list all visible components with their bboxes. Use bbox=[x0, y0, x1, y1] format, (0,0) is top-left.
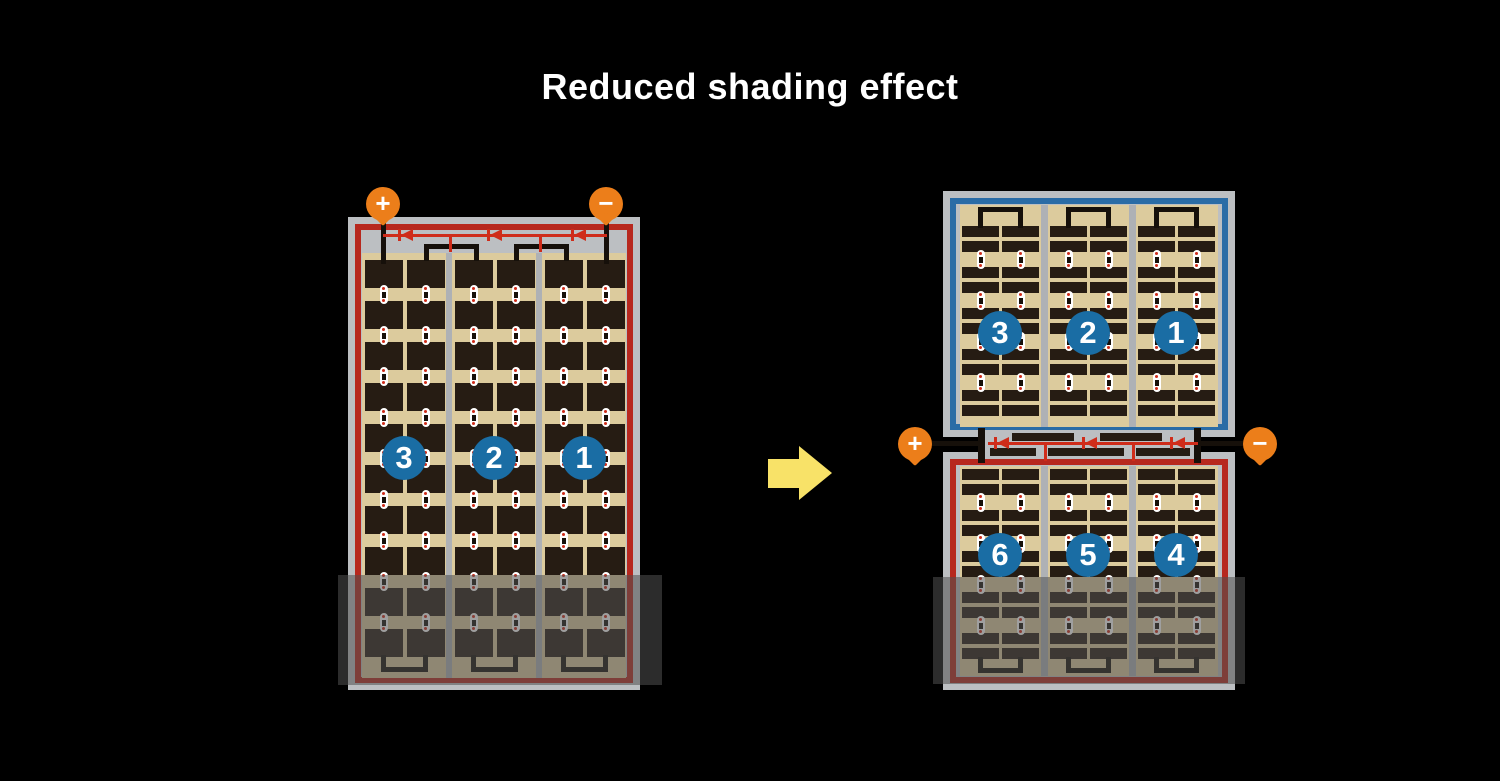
connector-bar bbox=[1107, 257, 1111, 263]
section-badge: 1 bbox=[562, 436, 606, 480]
connector-dot bbox=[472, 492, 475, 495]
connector-bar bbox=[562, 497, 566, 503]
connector-bar bbox=[472, 415, 476, 421]
connector-dot bbox=[562, 545, 565, 548]
cell-connector-icon bbox=[1017, 493, 1025, 512]
solar-bar-cell bbox=[1090, 469, 1127, 480]
connector-dot bbox=[1195, 375, 1198, 378]
connector-dot bbox=[472, 369, 475, 372]
connector-dot bbox=[1067, 495, 1070, 498]
solar-bar-cell bbox=[1090, 405, 1127, 416]
cell-connector-icon bbox=[560, 490, 568, 509]
transform-arrow-icon bbox=[768, 459, 799, 488]
connector-bar bbox=[1195, 380, 1199, 386]
generated-graphics bbox=[0, 0, 1500, 781]
cell-connector-icon bbox=[422, 490, 430, 509]
connector-bar bbox=[1019, 500, 1023, 506]
connector-dot bbox=[472, 328, 475, 331]
wire-bridge bbox=[1066, 207, 1111, 228]
connector-bar bbox=[1155, 500, 1159, 506]
cell-connector-icon bbox=[602, 408, 610, 427]
cell-connector-icon bbox=[422, 285, 430, 304]
solar-cell bbox=[455, 547, 493, 575]
solar-cell bbox=[407, 383, 445, 411]
connector-dot bbox=[979, 346, 982, 349]
connector-dot bbox=[472, 504, 475, 507]
connector-dot bbox=[1155, 495, 1158, 498]
cell-connector-icon bbox=[977, 373, 985, 392]
solar-cell bbox=[365, 506, 403, 534]
cell-connector-icon bbox=[470, 367, 478, 386]
connector-bar bbox=[1107, 298, 1111, 304]
connector-dot bbox=[1155, 536, 1158, 539]
connector-dot bbox=[382, 287, 385, 290]
cell-connector-icon bbox=[1017, 291, 1025, 310]
cell-connector-icon bbox=[1193, 373, 1201, 392]
connector-bar bbox=[472, 538, 476, 544]
solar-cell bbox=[365, 342, 403, 370]
transform-arrow-head-icon bbox=[799, 446, 832, 500]
connector-dot bbox=[382, 299, 385, 302]
connector-dot bbox=[514, 381, 517, 384]
connector-bar bbox=[604, 333, 608, 339]
connector-bar bbox=[424, 415, 428, 421]
connector-dot bbox=[562, 328, 565, 331]
solar-cell bbox=[545, 383, 583, 411]
cell-connector-icon bbox=[1017, 250, 1025, 269]
cell-connector-icon bbox=[560, 367, 568, 386]
connector-dot bbox=[472, 340, 475, 343]
section-badge: 1 bbox=[1154, 311, 1198, 355]
connector-bar bbox=[979, 257, 983, 263]
connector-dot bbox=[1155, 252, 1158, 255]
connector-dot bbox=[514, 299, 517, 302]
connector-dot bbox=[382, 340, 385, 343]
connector-dot bbox=[562, 340, 565, 343]
cell-connector-icon bbox=[1193, 291, 1201, 310]
connector-bar bbox=[514, 538, 518, 544]
connector-bar bbox=[382, 374, 386, 380]
cell-connector-icon bbox=[1065, 291, 1073, 310]
cell-connector-icon bbox=[380, 367, 388, 386]
diode-triangle-icon bbox=[997, 437, 1009, 449]
connector-dot bbox=[424, 533, 427, 536]
connector-dot bbox=[1067, 387, 1070, 390]
connector-bar bbox=[514, 333, 518, 339]
diode-triangle-icon bbox=[1085, 437, 1097, 449]
connector-bar bbox=[1155, 257, 1159, 263]
connector-dot bbox=[1195, 536, 1198, 539]
connector-bar bbox=[562, 333, 566, 339]
connector-bar bbox=[604, 292, 608, 298]
connector-bar bbox=[1107, 500, 1111, 506]
connector-dot bbox=[604, 422, 607, 425]
connector-dot bbox=[382, 504, 385, 507]
shading-overlay-right bbox=[933, 577, 1245, 684]
solar-cell bbox=[365, 301, 403, 329]
connector-dot bbox=[382, 410, 385, 413]
connector-dot bbox=[604, 287, 607, 290]
connector-dot bbox=[1107, 495, 1110, 498]
connector-bar bbox=[424, 497, 428, 503]
solar-cell bbox=[497, 547, 535, 575]
connector-dot bbox=[1019, 305, 1022, 308]
connector-dot bbox=[1019, 536, 1022, 539]
solar-cell bbox=[497, 342, 535, 370]
connector-dot bbox=[424, 328, 427, 331]
solar-cell bbox=[545, 301, 583, 329]
connector-dot bbox=[1107, 536, 1110, 539]
solar-bar-cell bbox=[1138, 469, 1175, 480]
solar-cell bbox=[587, 342, 625, 370]
connector-dot bbox=[562, 299, 565, 302]
connector-dot bbox=[424, 422, 427, 425]
connector-dot bbox=[382, 492, 385, 495]
connector-bar bbox=[1067, 380, 1071, 386]
cell-connector-icon bbox=[1065, 250, 1073, 269]
terminal-wire bbox=[381, 220, 386, 264]
cell-connector-icon bbox=[512, 490, 520, 509]
connector-bar bbox=[514, 292, 518, 298]
solar-cell bbox=[407, 547, 445, 575]
plus-terminal-icon: + bbox=[898, 427, 932, 461]
diode-triangle-icon bbox=[574, 229, 586, 241]
connector-dot bbox=[472, 410, 475, 413]
cell-connector-icon bbox=[1017, 373, 1025, 392]
connector-bar bbox=[979, 298, 983, 304]
junction-cell-segment bbox=[1100, 433, 1162, 441]
connector-bar bbox=[562, 415, 566, 421]
connector-dot bbox=[514, 504, 517, 507]
junction-cell-segment bbox=[1048, 448, 1124, 456]
connector-dot bbox=[1019, 387, 1022, 390]
connector-dot bbox=[472, 545, 475, 548]
solar-cell bbox=[587, 260, 625, 288]
connector-dot bbox=[1019, 507, 1022, 510]
connector-bar bbox=[382, 415, 386, 421]
junction-cell-segment bbox=[1136, 448, 1190, 456]
cell-connector-icon bbox=[1153, 493, 1161, 512]
connector-bar bbox=[1155, 298, 1159, 304]
cell-connector-icon bbox=[512, 326, 520, 345]
diagram-title: Reduced shading effect bbox=[0, 66, 1500, 108]
connector-dot bbox=[1155, 387, 1158, 390]
cell-connector-icon bbox=[560, 531, 568, 550]
solar-bar-cell bbox=[1138, 405, 1175, 416]
connector-bar bbox=[382, 292, 386, 298]
connector-dot bbox=[979, 305, 982, 308]
connector-bar bbox=[472, 333, 476, 339]
connector-bar bbox=[382, 333, 386, 339]
solar-bar-cell bbox=[1002, 469, 1039, 480]
connector-bar bbox=[382, 497, 386, 503]
connector-dot bbox=[514, 369, 517, 372]
cell-connector-icon bbox=[602, 285, 610, 304]
connector-dot bbox=[1155, 305, 1158, 308]
cell-connector-icon bbox=[422, 367, 430, 386]
connector-bar bbox=[1067, 298, 1071, 304]
solar-cell bbox=[587, 506, 625, 534]
solar-cell bbox=[497, 260, 535, 288]
connector-dot bbox=[1195, 495, 1198, 498]
connector-bar bbox=[1019, 380, 1023, 386]
cell-connector-icon bbox=[470, 531, 478, 550]
cell-connector-icon bbox=[602, 326, 610, 345]
solar-cell bbox=[587, 547, 625, 575]
solar-cell bbox=[497, 383, 535, 411]
section-badge: 3 bbox=[978, 311, 1022, 355]
cell-connector-icon bbox=[380, 285, 388, 304]
connector-dot bbox=[1067, 536, 1070, 539]
solar-cell bbox=[587, 301, 625, 329]
cell-connector-icon bbox=[602, 531, 610, 550]
connector-bar bbox=[382, 538, 386, 544]
solar-cell bbox=[587, 383, 625, 411]
connector-bar bbox=[1195, 298, 1199, 304]
connector-dot bbox=[472, 381, 475, 384]
connector-dot bbox=[604, 533, 607, 536]
cell-connector-icon bbox=[602, 490, 610, 509]
junction-terminal-bar bbox=[978, 428, 985, 463]
connector-dot bbox=[979, 495, 982, 498]
connector-bar bbox=[472, 374, 476, 380]
connector-dot bbox=[1107, 252, 1110, 255]
connector-dot bbox=[1107, 293, 1110, 296]
connector-dot bbox=[1107, 346, 1110, 349]
solar-cell bbox=[455, 383, 493, 411]
cell-connector-icon bbox=[1105, 493, 1113, 512]
connector-dot bbox=[1067, 264, 1070, 267]
cell-connector-icon bbox=[380, 490, 388, 509]
wire-bridge bbox=[1154, 207, 1199, 228]
section-badge: 3 bbox=[382, 436, 426, 480]
connector-dot bbox=[604, 369, 607, 372]
connector-dot bbox=[1019, 346, 1022, 349]
junction-terminal-bar bbox=[1194, 428, 1201, 463]
connector-dot bbox=[424, 299, 427, 302]
connector-dot bbox=[1195, 387, 1198, 390]
cell-connector-icon bbox=[1105, 373, 1113, 392]
cell-connector-icon bbox=[380, 531, 388, 550]
minus-terminal-icon: − bbox=[1243, 427, 1277, 461]
connector-dot bbox=[1195, 507, 1198, 510]
connector-bar bbox=[1107, 380, 1111, 386]
connector-dot bbox=[514, 492, 517, 495]
connector-dot bbox=[562, 287, 565, 290]
solar-cell bbox=[407, 260, 445, 288]
plus-symbol: + bbox=[366, 187, 400, 220]
connector-dot bbox=[1107, 264, 1110, 267]
solar-bar-cell bbox=[1050, 405, 1087, 416]
connector-bar bbox=[979, 500, 983, 506]
connector-bar bbox=[604, 374, 608, 380]
minus-terminal-icon: − bbox=[589, 187, 623, 221]
cell-connector-icon bbox=[512, 285, 520, 304]
cell-connector-icon bbox=[1193, 250, 1201, 269]
solar-cell bbox=[497, 506, 535, 534]
cell-connector-icon bbox=[977, 291, 985, 310]
connector-dot bbox=[979, 507, 982, 510]
diode-triangle-icon bbox=[401, 229, 413, 241]
cell-connector-icon bbox=[470, 490, 478, 509]
shading-overlay-left bbox=[338, 575, 662, 685]
connector-dot bbox=[424, 410, 427, 413]
connector-dot bbox=[1107, 507, 1110, 510]
connector-dot bbox=[424, 545, 427, 548]
cell-connector-icon bbox=[560, 285, 568, 304]
connector-dot bbox=[1107, 387, 1110, 390]
cell-connector-icon bbox=[560, 408, 568, 427]
cell-connector-icon bbox=[1153, 373, 1161, 392]
cell-connector-icon bbox=[422, 326, 430, 345]
plus-terminal-icon: + bbox=[366, 187, 400, 221]
connector-bar bbox=[514, 374, 518, 380]
connector-dot bbox=[979, 252, 982, 255]
connector-dot bbox=[424, 381, 427, 384]
connector-dot bbox=[382, 328, 385, 331]
connector-bar bbox=[424, 333, 428, 339]
connector-dot bbox=[604, 410, 607, 413]
diode-stub bbox=[539, 236, 542, 252]
connector-dot bbox=[472, 533, 475, 536]
connector-bar bbox=[1195, 500, 1199, 506]
connector-dot bbox=[1155, 375, 1158, 378]
cell-connector-icon bbox=[470, 326, 478, 345]
connector-dot bbox=[1067, 293, 1070, 296]
section-badge: 4 bbox=[1154, 533, 1198, 577]
connector-bar bbox=[604, 497, 608, 503]
minus-symbol: − bbox=[1243, 427, 1277, 460]
cell-connector-icon bbox=[1105, 291, 1113, 310]
solar-cell bbox=[455, 301, 493, 329]
connector-dot bbox=[562, 492, 565, 495]
solar-cell bbox=[545, 342, 583, 370]
cell-connector-icon bbox=[470, 285, 478, 304]
connector-dot bbox=[382, 381, 385, 384]
connector-dot bbox=[604, 504, 607, 507]
connector-dot bbox=[1067, 375, 1070, 378]
solar-bar-cell bbox=[1050, 469, 1087, 480]
solar-cell bbox=[365, 547, 403, 575]
solar-cell bbox=[545, 506, 583, 534]
connector-dot bbox=[979, 375, 982, 378]
connector-bar bbox=[562, 292, 566, 298]
connector-bar bbox=[472, 497, 476, 503]
cell-connector-icon bbox=[380, 326, 388, 345]
connector-dot bbox=[562, 422, 565, 425]
section-badge: 6 bbox=[978, 533, 1022, 577]
junction-cell-segment bbox=[1012, 433, 1074, 441]
connector-bar bbox=[514, 497, 518, 503]
section-badge: 5 bbox=[1066, 533, 1110, 577]
cell-connector-icon bbox=[602, 367, 610, 386]
connector-dot bbox=[1195, 293, 1198, 296]
connector-dot bbox=[424, 340, 427, 343]
junction-wire bbox=[930, 441, 978, 446]
section-badge: 2 bbox=[1066, 311, 1110, 355]
connector-dot bbox=[604, 340, 607, 343]
connector-bar bbox=[472, 292, 476, 298]
connector-dot bbox=[382, 369, 385, 372]
connector-dot bbox=[382, 545, 385, 548]
connector-dot bbox=[424, 287, 427, 290]
junction-cell-segment bbox=[990, 448, 1036, 456]
connector-dot bbox=[562, 381, 565, 384]
diode-triangle-icon bbox=[1173, 437, 1185, 449]
solar-bar-cell bbox=[1178, 469, 1215, 480]
solar-cell bbox=[545, 260, 583, 288]
diode-stub bbox=[1132, 444, 1135, 461]
cell-connector-icon bbox=[1153, 291, 1161, 310]
cell-connector-icon bbox=[422, 408, 430, 427]
connector-dot bbox=[1067, 346, 1070, 349]
connector-dot bbox=[979, 387, 982, 390]
connector-dot bbox=[424, 369, 427, 372]
solar-cell bbox=[497, 301, 535, 329]
solar-cell bbox=[455, 260, 493, 288]
connector-bar bbox=[604, 415, 608, 421]
connector-dot bbox=[514, 287, 517, 290]
connector-bar bbox=[1195, 257, 1199, 263]
connector-dot bbox=[1107, 305, 1110, 308]
cell-connector-icon bbox=[422, 531, 430, 550]
connector-dot bbox=[382, 533, 385, 536]
connector-dot bbox=[514, 533, 517, 536]
diode-triangle-icon bbox=[490, 229, 502, 241]
solar-cell bbox=[407, 342, 445, 370]
connector-bar bbox=[424, 374, 428, 380]
connector-dot bbox=[1155, 264, 1158, 267]
connector-dot bbox=[1019, 375, 1022, 378]
connector-bar bbox=[604, 538, 608, 544]
connector-bar bbox=[1067, 500, 1071, 506]
connector-dot bbox=[562, 410, 565, 413]
connector-dot bbox=[514, 422, 517, 425]
solar-bar-cell bbox=[962, 405, 999, 416]
connector-dot bbox=[1195, 346, 1198, 349]
connector-dot bbox=[1067, 252, 1070, 255]
connector-bar bbox=[514, 415, 518, 421]
connector-dot bbox=[1019, 264, 1022, 267]
connector-dot bbox=[514, 410, 517, 413]
connector-dot bbox=[1155, 507, 1158, 510]
solar-bar-cell bbox=[962, 469, 999, 480]
section-divider bbox=[1129, 205, 1136, 427]
cell-connector-icon bbox=[1105, 250, 1113, 269]
solar-cell bbox=[407, 301, 445, 329]
section-divider bbox=[1041, 205, 1048, 427]
connector-bar bbox=[424, 538, 428, 544]
wire-bridge bbox=[978, 207, 1023, 228]
connector-dot bbox=[562, 369, 565, 372]
junction-wire bbox=[1201, 441, 1247, 446]
connector-bar bbox=[1019, 298, 1023, 304]
connector-bar bbox=[424, 292, 428, 298]
connector-dot bbox=[472, 287, 475, 290]
connector-dot bbox=[604, 299, 607, 302]
connector-dot bbox=[562, 533, 565, 536]
connector-dot bbox=[979, 536, 982, 539]
connector-dot bbox=[604, 545, 607, 548]
connector-dot bbox=[1155, 346, 1158, 349]
minus-symbol: − bbox=[589, 187, 623, 220]
solar-bar-cell bbox=[1178, 405, 1215, 416]
connector-dot bbox=[514, 545, 517, 548]
diagram-canvas: 3 2 1 3 2 1 6 5 4 + − + − Reduced shadin… bbox=[0, 0, 1500, 781]
connector-dot bbox=[604, 492, 607, 495]
connector-dot bbox=[514, 340, 517, 343]
cell-connector-icon bbox=[512, 367, 520, 386]
